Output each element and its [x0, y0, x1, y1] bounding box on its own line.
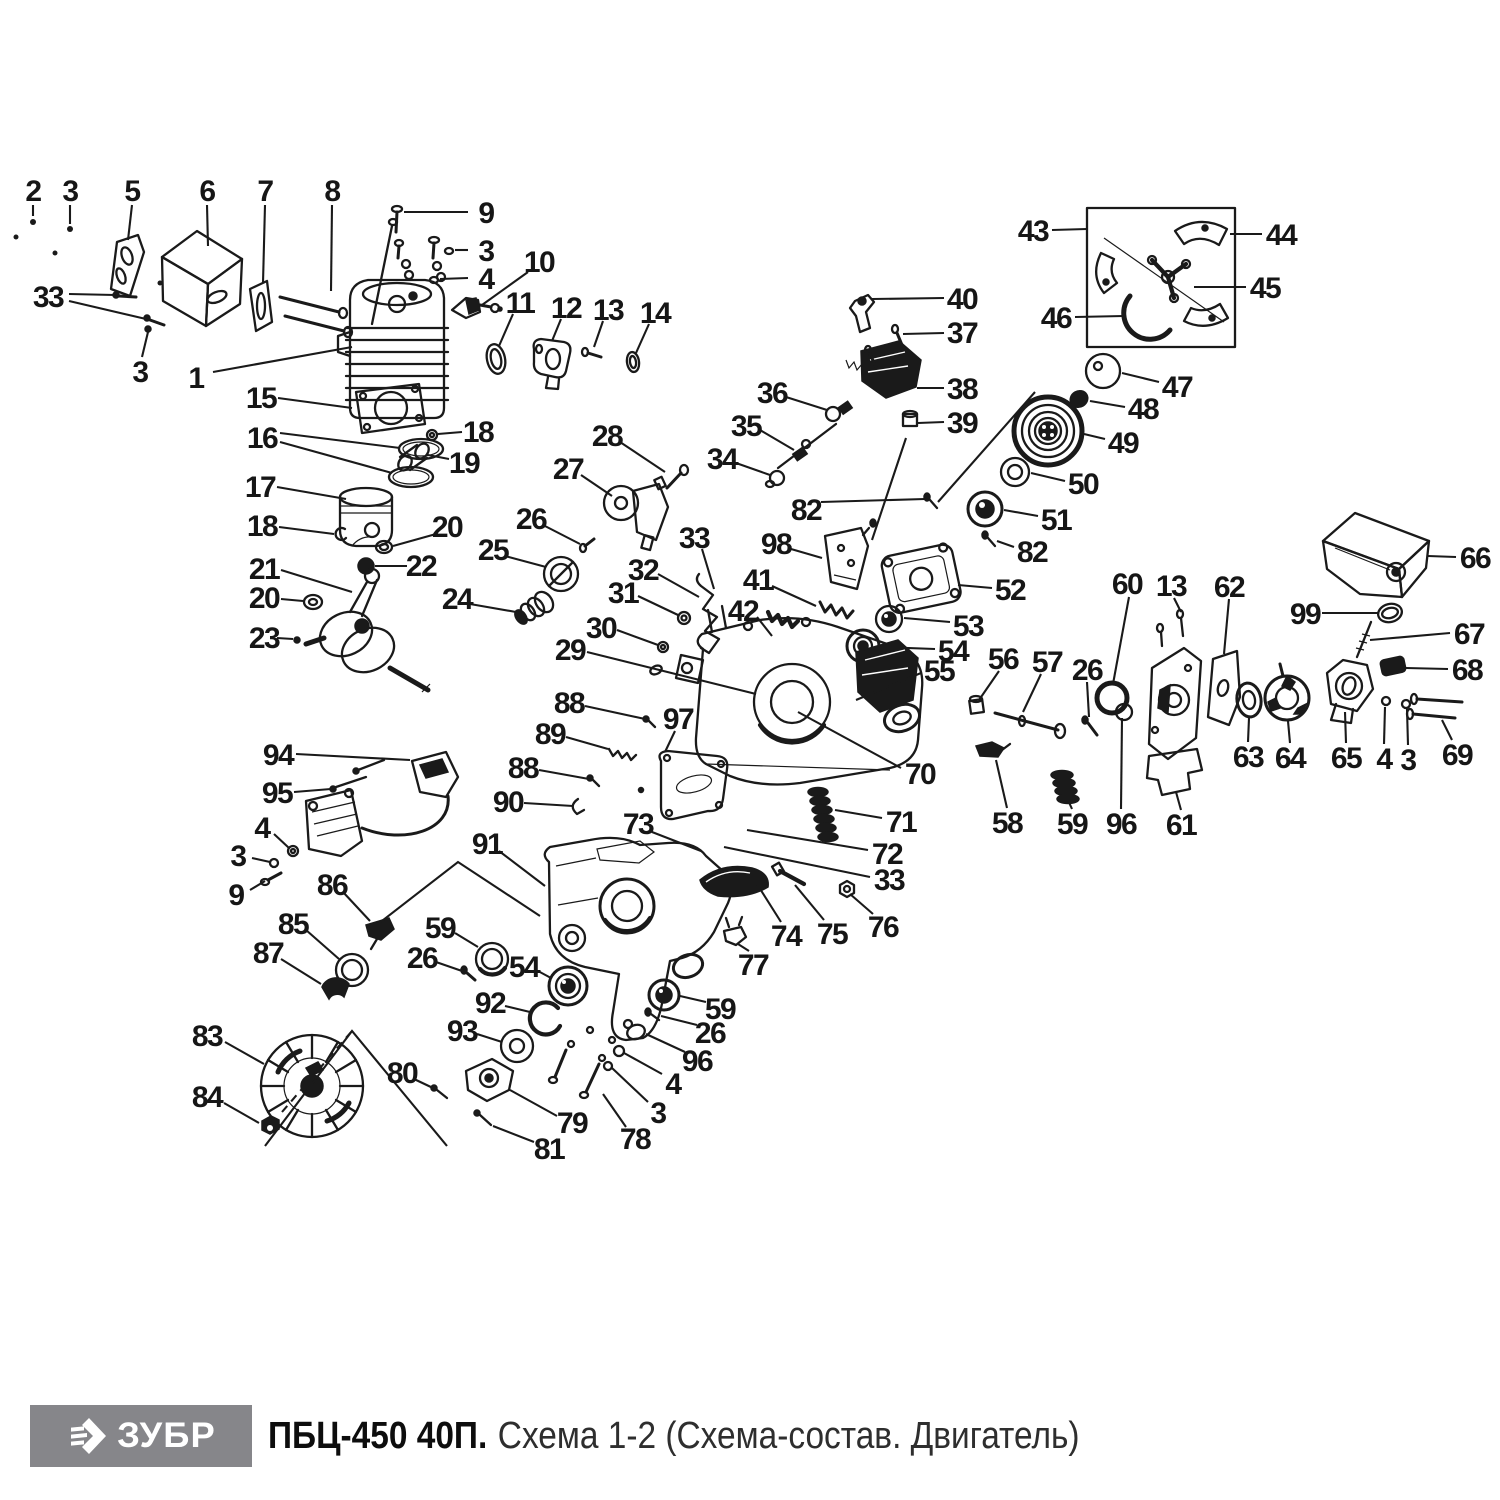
air-filter-cover-drawing [1323, 513, 1429, 597]
brand-arrow-icon [68, 1415, 110, 1457]
leader-line-43 [1052, 229, 1087, 230]
part-label-84: 84 [192, 1081, 224, 1114]
part-label-88: 88 [554, 687, 585, 720]
fastener-dot-0 [30, 219, 36, 225]
part-label-28: 28 [592, 420, 623, 453]
footer-bar: ЗУБР ПБЦ-450 40П. Схема 1-2 (Схема-соста… [0, 1398, 1500, 1482]
fastener-dot-1 [14, 235, 19, 240]
part-label-23: 23 [249, 622, 280, 655]
part-label-74: 74 [771, 920, 803, 953]
part-label-19: 19 [449, 447, 480, 480]
leader-line-82 [997, 541, 1014, 547]
fastener-dot-3 [67, 226, 73, 232]
oil-pump-drawing [604, 465, 688, 550]
part-label-93: 93 [447, 1015, 478, 1048]
leader-line-46 [1075, 316, 1124, 317]
intake-parts-drawing [484, 339, 640, 389]
part-label-4: 4 [254, 812, 271, 845]
part-label-50: 50 [1068, 468, 1099, 501]
leader-line-17 [277, 487, 346, 499]
part-label-64: 64 [1275, 742, 1307, 775]
construction-line-4 [872, 438, 906, 540]
leader-line-91 [499, 851, 545, 886]
part-label-39: 39 [947, 407, 978, 440]
part-label-59: 59 [425, 912, 456, 945]
leader-line-59 [455, 933, 478, 947]
fastener-dot-4 [158, 281, 163, 286]
part-label-96: 96 [1106, 808, 1137, 841]
leader-line-93 [477, 1034, 502, 1042]
part-label-10: 10 [524, 246, 555, 279]
leader-line-59 [680, 996, 706, 1002]
part-label-27: 27 [553, 453, 584, 486]
part-label-14: 14 [640, 297, 672, 330]
crankshaft-drawing [294, 569, 430, 692]
oiler-housing-drawing [880, 542, 963, 615]
part-label-16: 16 [247, 422, 278, 455]
part-label-82: 82 [791, 494, 822, 527]
construction-line-0 [265, 1031, 447, 1146]
leader-line-47 [1122, 373, 1159, 382]
part-label-86: 86 [317, 869, 348, 902]
leader-line-32 [658, 574, 699, 597]
carb-bracket-drawing [846, 325, 921, 426]
part-label-48: 48 [1128, 393, 1159, 426]
bottom-bearings-drawing [461, 943, 679, 1098]
leader-line-37 [903, 333, 944, 334]
part-label-73: 73 [623, 808, 654, 841]
part-label-38: 38 [947, 373, 978, 406]
parts-artwork [111, 206, 1462, 1137]
part-label-26: 26 [1072, 654, 1103, 687]
leader-line-16 [280, 433, 400, 448]
part-label-59: 59 [1057, 808, 1088, 841]
leader-line-39 [918, 422, 944, 423]
crankcase-lower-drawing [545, 838, 731, 1040]
part-label-30: 30 [586, 612, 617, 645]
part-label-1: 1 [188, 362, 204, 395]
part-label-80: 80 [387, 1057, 418, 1090]
leader-line-4 [624, 1053, 662, 1074]
fastener-dot-2 [53, 251, 58, 256]
part-label-94: 94 [263, 739, 295, 772]
leader-line-48 [1090, 401, 1125, 407]
leader-line-54 [538, 971, 551, 978]
part-label-32: 32 [628, 554, 659, 587]
scheme-subtitle: Схема 1-2 (Схема-состав. Двигатель) [498, 1415, 1080, 1458]
part-label-43: 43 [1018, 215, 1049, 248]
part-label-4: 4 [1376, 743, 1393, 776]
page: { "footer": { "brand": "ЗУБР", "model": … [0, 0, 1500, 1500]
part-label-4: 4 [665, 1068, 682, 1101]
part-label-3: 3 [1400, 744, 1416, 777]
leader-line-82 [821, 499, 925, 502]
leader-line-4 [274, 834, 289, 848]
leader-line-16 [280, 442, 392, 473]
part-label-9: 9 [478, 197, 494, 230]
leader-line-21 [281, 570, 352, 592]
leader-line-89 [566, 737, 608, 749]
muffler-bolts-drawing [280, 297, 352, 337]
leader-line-67 [1370, 633, 1450, 640]
part-label-42: 42 [728, 595, 759, 628]
part-label-68: 68 [1452, 654, 1483, 687]
part-label-41: 41 [743, 564, 774, 597]
part-label-91: 91 [472, 828, 503, 861]
part-label-75: 75 [817, 918, 848, 951]
leader-line-52 [958, 585, 992, 588]
part-label-71: 71 [886, 806, 917, 839]
part-label-46: 46 [1041, 302, 1072, 335]
construction-line-1 [378, 862, 540, 924]
leader-line-23 [277, 638, 293, 639]
leader-line-1 [213, 347, 352, 372]
leader-line-84 [224, 1103, 259, 1123]
leader-line-98 [791, 549, 822, 558]
part-label-13: 13 [593, 294, 624, 327]
leader-line-74 [757, 884, 781, 922]
leader-line-79 [510, 1090, 557, 1116]
part-label-22: 22 [406, 550, 437, 583]
part-label-55: 55 [924, 655, 955, 688]
part-label-69: 69 [1442, 739, 1473, 772]
exploded-parts-diagram: 2356789341011121314333115161819171820212… [0, 0, 1500, 1380]
leader-line-65 [1345, 712, 1346, 743]
part-label-29: 29 [555, 634, 586, 667]
part-label-89: 89 [535, 718, 566, 751]
part-label-51: 51 [1041, 504, 1072, 537]
part-label-35: 35 [731, 410, 762, 443]
leader-line-61 [1176, 792, 1181, 810]
flywheel-drawing [261, 1035, 363, 1137]
leader-line-71 [835, 810, 882, 818]
throttle-rod-drawing [766, 401, 852, 487]
part-label-6: 6 [199, 175, 215, 208]
leader-line-49 [1084, 434, 1105, 439]
part-label-58: 58 [992, 807, 1023, 840]
leader-line-92 [505, 1006, 530, 1012]
leader-line-96 [646, 1034, 685, 1052]
leader-line-40 [872, 298, 944, 299]
part-label-18: 18 [463, 416, 494, 449]
part-label-87: 87 [253, 937, 284, 970]
leader-line-33 [69, 294, 115, 295]
part-label-57: 57 [1032, 646, 1063, 679]
starter-pawl-drawing [431, 1059, 513, 1125]
leader-line-94 [296, 754, 410, 760]
piston-drawing [336, 488, 392, 574]
leader-line-18 [438, 432, 462, 434]
carburetor-group-drawing [1235, 601, 1462, 723]
leader-line-85 [306, 930, 339, 959]
part-label-47: 47 [1162, 371, 1193, 404]
leader-line-75 [795, 885, 824, 920]
leader-line-8 [331, 205, 332, 291]
part-label-66: 66 [1460, 542, 1491, 575]
part-label-26: 26 [407, 942, 438, 975]
part-label-17: 17 [245, 471, 276, 504]
part-label-60: 60 [1112, 568, 1143, 601]
part-label-8: 8 [324, 175, 340, 208]
part-label-7: 7 [257, 175, 273, 208]
leader-line-88 [539, 770, 589, 779]
leader-line-66 [1428, 556, 1456, 557]
part-label-3: 3 [230, 840, 246, 873]
part-label-12: 12 [551, 292, 582, 325]
part-label-61: 61 [1166, 809, 1197, 842]
muffler-gasket-drawing [111, 235, 144, 296]
leader-line-33 [702, 549, 714, 589]
leader-line-3 [612, 1068, 648, 1102]
leader-line-69 [1442, 720, 1452, 740]
part-label-26: 26 [516, 503, 547, 536]
crankcase-gasket-drawing [660, 751, 728, 819]
part-label-52: 52 [995, 574, 1026, 607]
leader-line-15 [278, 398, 352, 408]
leader-line-90 [524, 803, 573, 806]
cylinder-base-gasket-drawing [356, 384, 425, 433]
leader-line-3 [142, 332, 148, 357]
part-label-20: 20 [249, 582, 280, 615]
leader-line-36 [786, 397, 827, 410]
part-label-4: 4 [478, 263, 495, 296]
leader-line-31 [638, 596, 678, 615]
part-label-36: 36 [757, 377, 788, 410]
part-label-37: 37 [947, 317, 978, 350]
leader-line-7 [263, 205, 265, 283]
leader-line-50 [1031, 473, 1065, 481]
model-name: ПБЦ-450 40П. [268, 1415, 487, 1458]
rubber-buffer-drawing [808, 788, 838, 842]
part-label-49: 49 [1108, 427, 1139, 460]
leader-line-53 [904, 618, 950, 622]
tensioner-rod-drawing [969, 683, 1132, 804]
leader-line-29 [587, 652, 756, 694]
part-label-15: 15 [246, 382, 277, 415]
leader-line-27 [581, 475, 612, 496]
switch-parts-drawing [322, 918, 394, 999]
leader-line-81 [493, 1126, 534, 1142]
leader-line-20 [281, 599, 303, 601]
part-label-25: 25 [478, 534, 509, 567]
part-label-63: 63 [1233, 741, 1264, 774]
part-label-92: 92 [475, 987, 506, 1020]
part-label-56: 56 [988, 643, 1019, 676]
part-label-62: 62 [1214, 571, 1245, 604]
leader-line-20 [393, 534, 436, 546]
brand-name: ЗУБР [117, 1416, 216, 1456]
leader-line-87 [281, 959, 321, 984]
part-label-3: 3 [132, 356, 148, 389]
muffler-drawing [162, 231, 242, 326]
leader-line-63 [1248, 718, 1249, 742]
choke-lever-drawing [850, 295, 874, 332]
leader-line-88 [585, 706, 645, 719]
leader-line-35 [760, 430, 794, 450]
leader-line-18 [279, 527, 334, 534]
leader-line-95 [294, 789, 331, 792]
leader-line-83 [225, 1042, 264, 1064]
part-label-3: 3 [62, 175, 78, 208]
part-label-33: 33 [874, 864, 905, 897]
leader-line-57 [1023, 674, 1041, 712]
part-label-65: 65 [1331, 742, 1362, 775]
leader-line-30 [617, 630, 658, 645]
clutch-box-drawing [1087, 208, 1235, 347]
part-label-82: 82 [1017, 536, 1048, 569]
leader-line-62 [1224, 599, 1229, 654]
part-label-24: 24 [442, 583, 474, 616]
part-label-5: 5 [124, 175, 140, 208]
part-label-77: 77 [738, 949, 769, 982]
part-label-18: 18 [247, 510, 278, 543]
document-title: ПБЦ-450 40П. Схема 1-2 (Схема-состав. Дв… [268, 1405, 1080, 1467]
leader-line-4 [440, 278, 468, 279]
part-label-78: 78 [620, 1123, 651, 1156]
part-label-34: 34 [707, 443, 739, 476]
wrist-pin-drawing [395, 430, 437, 473]
leader-line-26 [436, 962, 462, 971]
leader-line-96 [1121, 718, 1122, 809]
part-label-95: 95 [262, 777, 293, 810]
leader-line-51 [1004, 510, 1038, 516]
leader-line-73 [652, 832, 701, 851]
leader-line-28 [620, 442, 665, 472]
leader-line-41 [772, 586, 816, 606]
cylinder-drawing [338, 280, 448, 418]
leader-line-33 [69, 301, 146, 319]
leader-line-26 [661, 1016, 697, 1025]
oil-seal-drawing [544, 539, 594, 591]
part-label-70: 70 [905, 758, 936, 791]
part-label-3: 3 [650, 1097, 666, 1130]
spark-plug-drawing [452, 298, 502, 318]
leader-line-3 [1407, 709, 1408, 745]
leader-line-6 [207, 205, 208, 246]
part-label-44: 44 [1266, 219, 1298, 252]
head-bolts-drawing [372, 206, 453, 324]
leader-line-5 [128, 205, 132, 240]
leader-line-25 [505, 556, 546, 567]
leader-line-3 [252, 858, 270, 862]
callouts-layer: 2356789341011121314333115161819171820212… [14, 175, 1491, 1166]
part-label-33: 33 [33, 281, 64, 314]
part-label-83: 83 [192, 1020, 223, 1053]
part-label-20: 20 [432, 511, 463, 544]
crankcase-upper-drawing [676, 602, 923, 784]
part-label-99: 99 [1290, 598, 1321, 631]
leader-line-72 [747, 830, 868, 850]
part-label-2: 2 [25, 175, 41, 208]
leader-line-60 [1113, 597, 1129, 684]
part-label-54: 54 [509, 951, 541, 984]
part-label-81: 81 [534, 1133, 565, 1166]
leader-line-26 [1087, 682, 1089, 717]
part-label-97: 97 [663, 703, 694, 736]
leader-line-4 [1384, 707, 1385, 744]
leader-line-34 [736, 463, 770, 475]
part-label-40: 40 [947, 283, 978, 316]
leader-line-26 [543, 525, 580, 544]
part-label-76: 76 [868, 911, 899, 944]
leader-line-64 [1288, 721, 1290, 743]
ignition-coil-drawing [261, 752, 458, 885]
oil-worm-gear-drawing [512, 588, 557, 626]
part-label-9: 9 [228, 879, 244, 912]
part-label-90: 90 [493, 786, 524, 819]
leader-line-24 [470, 604, 516, 612]
part-label-67: 67 [1454, 618, 1485, 651]
part-label-98: 98 [761, 528, 792, 561]
part-label-45: 45 [1250, 272, 1281, 305]
exhaust-gasket-drawing [250, 281, 272, 331]
part-label-88: 88 [508, 752, 539, 785]
leader-line-68 [1406, 668, 1448, 669]
brand-logo: ЗУБР [30, 1405, 252, 1467]
part-label-59: 59 [705, 993, 736, 1026]
part-label-11: 11 [506, 287, 536, 320]
part-label-13: 13 [1156, 570, 1187, 603]
chain-catcher-drawing [825, 519, 876, 589]
small-screws-cluster-drawing [573, 716, 655, 814]
leader-line-58 [996, 760, 1007, 808]
part-label-33: 33 [679, 522, 710, 555]
